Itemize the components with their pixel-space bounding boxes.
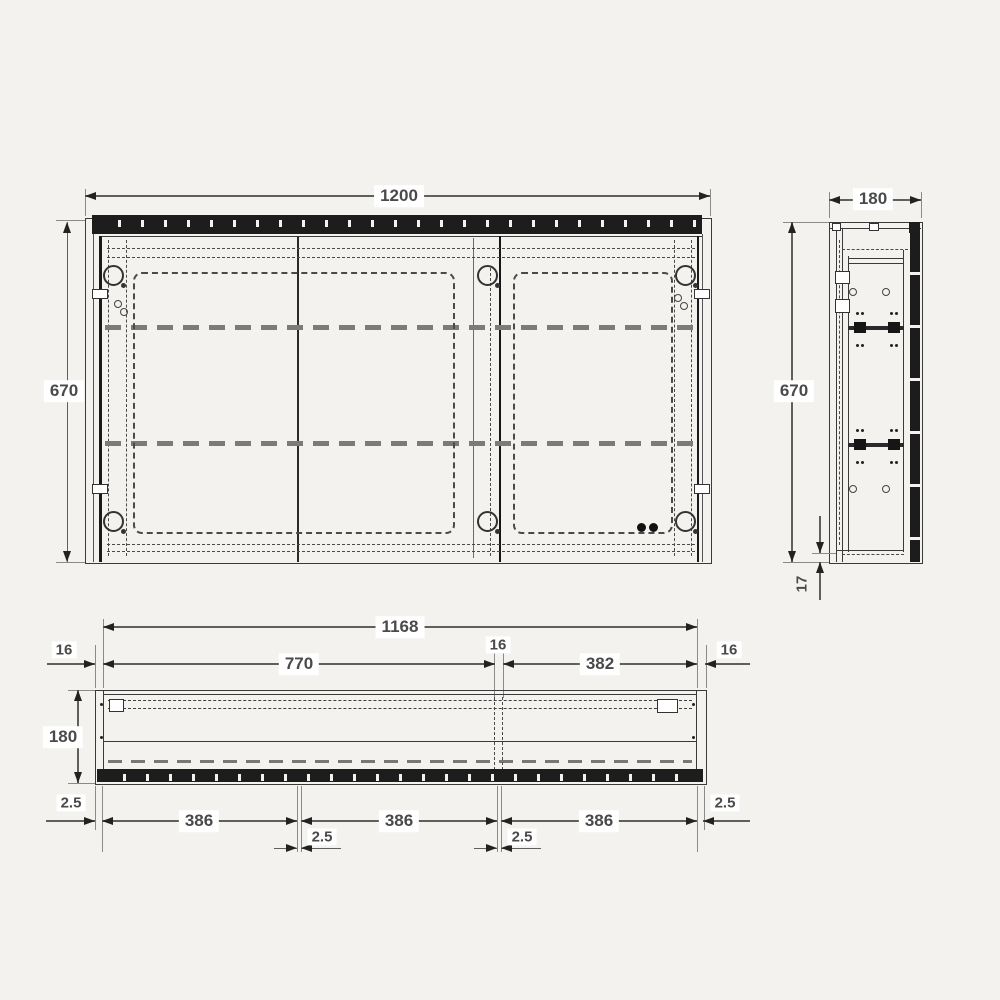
dim-plan-door-3: 386: [579, 810, 619, 832]
hinge-pin: [693, 283, 698, 288]
pin-dot: [890, 461, 893, 464]
arrowhead: [74, 690, 82, 701]
pin-dot: [861, 429, 864, 432]
hidden-line: [107, 257, 695, 258]
arrowhead: [486, 844, 497, 852]
pin-dot: [895, 344, 898, 347]
screw-hole: [882, 485, 890, 493]
bottom-inner-line: [836, 550, 904, 551]
screw-hole: [882, 288, 890, 296]
screw-dot: [692, 703, 695, 706]
hinge-icon: [675, 511, 696, 532]
inner-line: [848, 263, 904, 264]
hidden-line: [839, 240, 840, 545]
rail-bottom-line: [99, 236, 702, 238]
pin-hole: [674, 294, 682, 302]
socket-dot: [637, 523, 646, 532]
side-wall-line: [103, 690, 104, 770]
pin-dot: [856, 461, 859, 464]
pin-dot: [895, 461, 898, 464]
dim-plan-depth: 180: [43, 726, 83, 748]
pin-hole: [120, 308, 128, 316]
arrowhead: [788, 222, 796, 233]
arrowhead: [816, 542, 824, 553]
wall-bracket: [694, 289, 710, 299]
door-edge-left: [99, 236, 102, 562]
hidden-line: [126, 240, 127, 556]
hidden-line: [691, 240, 692, 556]
edge-line: [702, 234, 703, 562]
inner-line: [903, 250, 904, 552]
hinge-pin: [495, 283, 500, 288]
wall-bracket: [92, 484, 108, 494]
hidden-line: [108, 240, 109, 556]
pin-dot: [856, 312, 859, 315]
shelf-support: [854, 322, 866, 333]
screw-dot: [692, 736, 695, 739]
dim-plan-compartment-right: 382: [580, 653, 620, 675]
compartment-outline-right: [513, 272, 673, 534]
dim-plan-door-2: 386: [379, 810, 419, 832]
arrowhead: [910, 196, 921, 204]
hidden-line: [108, 708, 692, 709]
hinge-icon: [477, 511, 498, 532]
compartment-outline-left: [133, 272, 455, 534]
arrowhead: [74, 772, 82, 783]
mirror-door-edge: [910, 222, 920, 562]
dim-plan-door-gap-2: 2.5: [508, 828, 537, 845]
door-strip-ticks: [103, 774, 697, 781]
pin-dot: [890, 312, 893, 315]
arrowhead: [63, 222, 71, 233]
arrowhead: [705, 660, 716, 668]
dim-plan-door-1: 386: [179, 810, 219, 832]
wall-bracket: [694, 484, 710, 494]
arrowhead: [699, 192, 710, 200]
extension-line: [68, 783, 95, 784]
socket-dot: [649, 523, 658, 532]
dim-side-depth: 180: [853, 188, 893, 210]
arrowhead: [286, 844, 297, 852]
side-wall-line: [696, 690, 697, 770]
arrowhead: [686, 817, 697, 825]
arrowhead: [84, 817, 95, 825]
extension-line: [56, 220, 85, 221]
arrowhead: [102, 817, 113, 825]
arrowhead: [703, 817, 714, 825]
dim-front-height: 670: [44, 380, 84, 402]
screw-hole: [849, 288, 857, 296]
hidden-line: [842, 554, 904, 555]
shelf-support: [888, 322, 900, 333]
inner-line: [848, 258, 904, 259]
pin-dot: [895, 429, 898, 432]
edge-line: [93, 234, 94, 562]
hidden-line: [107, 544, 695, 545]
dim-plan-inner-width: 1168: [376, 616, 425, 638]
partition-hidden-line: [494, 697, 495, 770]
dim-plan-door-gap-1: 2.5: [308, 828, 337, 845]
hidden-line: [108, 760, 692, 763]
hinge-pin: [121, 283, 126, 288]
dim-plan-partition: 16: [486, 636, 511, 653]
pin-dot: [856, 344, 859, 347]
wall-bracket: [92, 289, 108, 299]
arrowhead: [486, 817, 497, 825]
hinge-pin: [693, 529, 698, 534]
shelf-support: [888, 439, 900, 450]
pin-dot: [861, 312, 864, 315]
arrowhead: [829, 196, 840, 204]
dim-side-height: 670: [774, 380, 814, 402]
hinge-pin: [121, 529, 126, 534]
pin-dot: [890, 429, 893, 432]
plan-door-strip: [97, 769, 703, 782]
hinge-plate: [832, 223, 841, 231]
pin-dot: [890, 344, 893, 347]
arrowhead: [503, 660, 514, 668]
dim-front-width: 1200: [374, 185, 424, 207]
hinge-pin: [495, 529, 500, 534]
shelf-support: [854, 439, 866, 450]
arrowhead: [301, 817, 312, 825]
hinge-icon: [477, 265, 498, 286]
hinge-icon: [675, 265, 696, 286]
pin-dot: [861, 461, 864, 464]
dim-plan-compartment-left: 770: [279, 653, 319, 675]
dim-plan-edge-gap-left: 2.5: [57, 794, 86, 811]
pin-dot: [895, 312, 898, 315]
dim-plan-wall-right: 16: [717, 641, 742, 658]
arrowhead: [686, 660, 697, 668]
arrowhead: [286, 817, 297, 825]
hinge-icon: [103, 511, 124, 532]
corner-block: [909, 222, 920, 233]
arrowhead: [84, 660, 95, 668]
hidden-line: [674, 240, 675, 556]
rail-ticks: [98, 220, 696, 227]
arrowhead: [85, 192, 96, 200]
dim-plan-wall-left: 16: [52, 641, 77, 658]
arrowhead: [788, 551, 796, 562]
arrowhead: [816, 562, 824, 573]
pin-hole: [680, 302, 688, 310]
screw-dot: [100, 703, 103, 706]
inner-line: [473, 238, 474, 558]
wall-rail-bracket: [835, 299, 850, 313]
dim-side-bottom-offset: 17: [793, 572, 810, 597]
partition-hidden-line: [502, 697, 503, 770]
hinge-plate: [869, 223, 879, 231]
arrowhead: [501, 817, 512, 825]
back-panel-line: [103, 741, 697, 742]
arrowhead: [103, 660, 114, 668]
technical-drawing: 1200 670: [0, 0, 1000, 1000]
hidden-line: [842, 249, 908, 250]
dim-plan-edge-gap-right: 2.5: [711, 794, 740, 811]
pin-dot: [861, 344, 864, 347]
screw-dot: [100, 736, 103, 739]
pin-dot: [856, 429, 859, 432]
screw-hole: [849, 485, 857, 493]
arrowhead: [63, 551, 71, 562]
inner-line: [103, 694, 697, 695]
front-top-rail: [92, 215, 702, 234]
pin-hole: [114, 300, 122, 308]
hinge-icon: [103, 265, 124, 286]
hinge-plate: [109, 699, 124, 712]
arrowhead: [686, 623, 697, 631]
arrowhead: [103, 623, 114, 631]
hidden-line: [107, 248, 695, 249]
hidden-line: [108, 700, 692, 701]
arrowhead: [484, 660, 495, 668]
extension-line: [68, 690, 95, 691]
wall-rail-bracket: [835, 271, 850, 284]
hinge-plate: [657, 699, 678, 713]
hidden-line: [107, 551, 695, 552]
